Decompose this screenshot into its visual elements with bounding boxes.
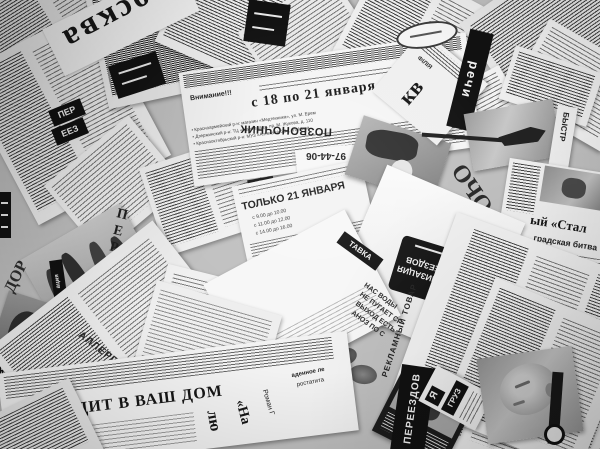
- badge-mark: [118, 62, 151, 74]
- badge-mark: [1, 214, 8, 216]
- lyu-letters: лю: [202, 409, 224, 433]
- rostatita-line: ростатита: [296, 377, 324, 388]
- newspaper-collage-photo: осква ПЕР ЕЕЗ ЕРЕЕЗ ДОР ация ПЕРЕЕЗ 38-0…: [0, 0, 600, 449]
- pereez-badge-line2: ЕЕЗ: [60, 124, 80, 139]
- stamp-mark: [410, 30, 442, 38]
- black-ad-badge: [243, 0, 290, 47]
- pereez-badge-line1: ПЕР: [57, 105, 78, 121]
- dor-letters: ДОР: [1, 258, 32, 296]
- photo-fragment-face: [476, 346, 583, 445]
- kv-letters: кв: [393, 74, 429, 110]
- dark-object: [364, 127, 420, 164]
- badge-mark: [254, 12, 282, 18]
- phone-upside-down: 97-44-06: [306, 150, 346, 161]
- gruz-label: ГРУЗ: [447, 387, 464, 408]
- badge-mark: [122, 75, 147, 85]
- atsiya-label: ация: [54, 274, 62, 289]
- pereezdov-vertical-label: ПЕРЕЕЗДОВ: [403, 373, 423, 445]
- photo-blob: [560, 177, 587, 201]
- roman-byline: Роман Г: [261, 389, 275, 416]
- ya-label: Я: [429, 390, 442, 401]
- attention-label: Внимание!!!: [190, 90, 233, 103]
- badge-mark: [1, 226, 8, 228]
- text-column: [506, 162, 541, 214]
- na-quote-headline: «На: [231, 398, 253, 426]
- rifle-body: [497, 124, 547, 148]
- badge-mark: [252, 26, 274, 31]
- badge-mark: [1, 202, 8, 204]
- photo-fragment-small: [539, 165, 600, 210]
- left-edge-black-strip: [0, 192, 11, 238]
- ya-badge: Я: [425, 385, 446, 406]
- ring-mark: [544, 424, 565, 445]
- rechi-label: речи: [459, 60, 482, 101]
